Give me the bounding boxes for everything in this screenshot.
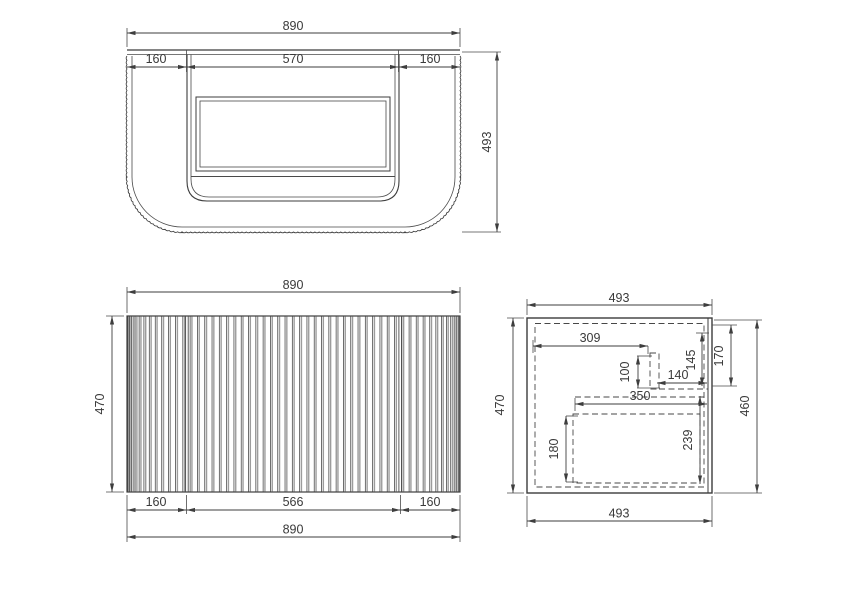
top-right-offset-label: 160 (420, 52, 441, 66)
front-right-panel-label: 160 (420, 495, 441, 509)
top-depth-label: 493 (480, 132, 494, 153)
side-top-clearance-label: 170 (712, 346, 726, 367)
basin-bowl-outline (196, 97, 390, 171)
side-depth-bottom-label: 493 (609, 507, 630, 521)
side-rail-drop-label: 145 (684, 350, 698, 371)
technical-drawing: 890 160 570 160 493 890 470 160 566 160 … (0, 0, 842, 595)
drawing-sheet: 890 160 570 160 493 890 470 160 566 160 … (0, 0, 842, 595)
side-bracket-height-label: 100 (618, 362, 632, 383)
bracket-hidden-outline (650, 353, 659, 389)
side-height-right-label: 460 (738, 396, 752, 417)
front-overall-width-bottom-label: 890 (283, 523, 304, 537)
front-center-panel-label: 566 (283, 495, 304, 509)
fluting-texture (127, 316, 460, 492)
side-cavity-height-label: 239 (681, 430, 695, 451)
front-overall-width-label: 890 (283, 278, 304, 292)
basin-bowl-inner-line (200, 101, 386, 167)
interior-hidden-outline (535, 324, 704, 488)
side-depth-top-label: 493 (609, 291, 630, 305)
basin-opening-outline (187, 55, 399, 202)
side-drawer-depth-label: 350 (630, 389, 651, 403)
side-height-left-label: 470 (493, 395, 507, 416)
side-view: 493 470 309 100 140 145 170 350 180 239 … (493, 291, 762, 527)
front-left-panel-label: 160 (146, 495, 167, 509)
side-internal-depth-label: 309 (580, 331, 601, 345)
top-opening-width-label: 570 (283, 52, 304, 66)
basin-opening-inner-line (191, 55, 395, 198)
top-left-offset-label: 160 (146, 52, 167, 66)
side-drawer-height-label: 180 (547, 439, 561, 460)
fluted-edge-outline (126, 56, 461, 233)
front-view: 890 470 160 566 160 890 (93, 278, 460, 542)
top-overall-width-label: 890 (283, 19, 304, 33)
cabinet-side-outline (527, 318, 712, 493)
top-view: 890 160 570 160 493 (126, 19, 501, 233)
front-height-label: 470 (93, 394, 107, 415)
